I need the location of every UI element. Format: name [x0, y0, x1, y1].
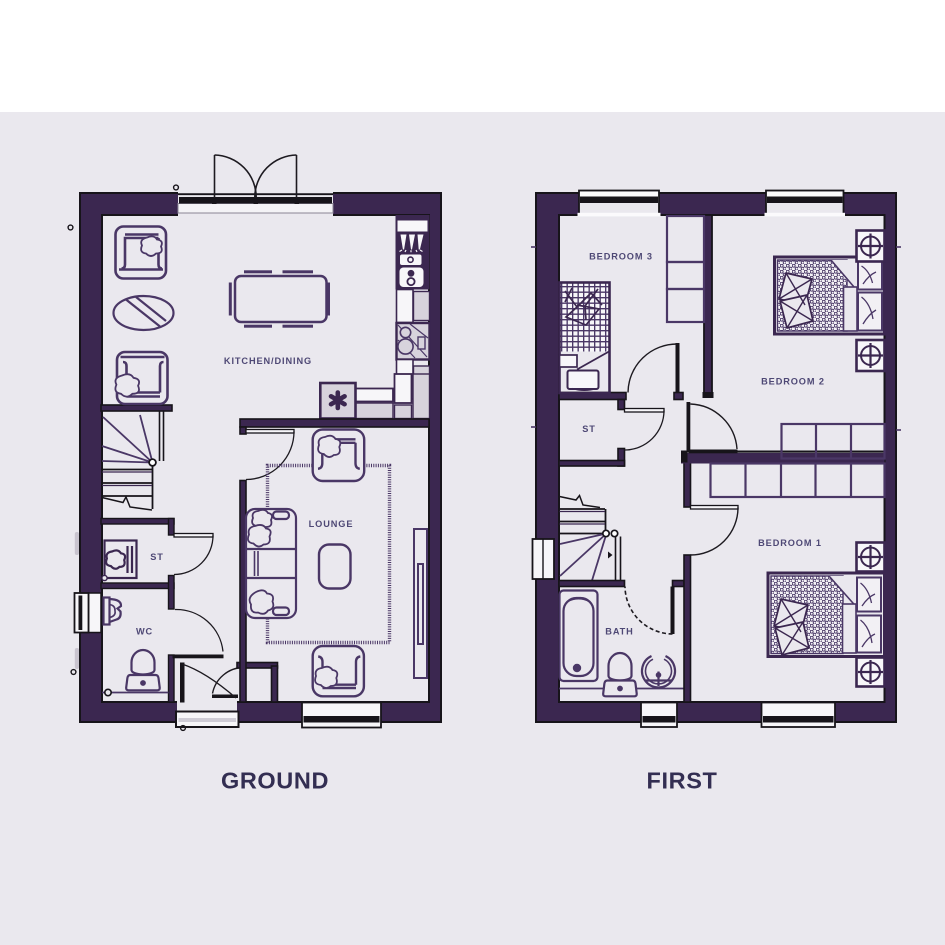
- svg-text:BEDROOM 1: BEDROOM 1: [758, 538, 822, 548]
- svg-text:ST: ST: [150, 552, 164, 562]
- svg-text:KITCHEN/DINING: KITCHEN/DINING: [224, 356, 312, 366]
- svg-text:BATH: BATH: [605, 627, 633, 637]
- svg-text:WC: WC: [136, 627, 153, 637]
- svg-text:BEDROOM 2: BEDROOM 2: [761, 377, 825, 387]
- svg-text:LOUNGE: LOUNGE: [309, 519, 354, 529]
- svg-text:BEDROOM 3: BEDROOM 3: [589, 252, 653, 262]
- svg-text:FIRST: FIRST: [647, 768, 718, 794]
- svg-text:ST: ST: [582, 424, 596, 434]
- svg-text:GROUND: GROUND: [221, 768, 329, 794]
